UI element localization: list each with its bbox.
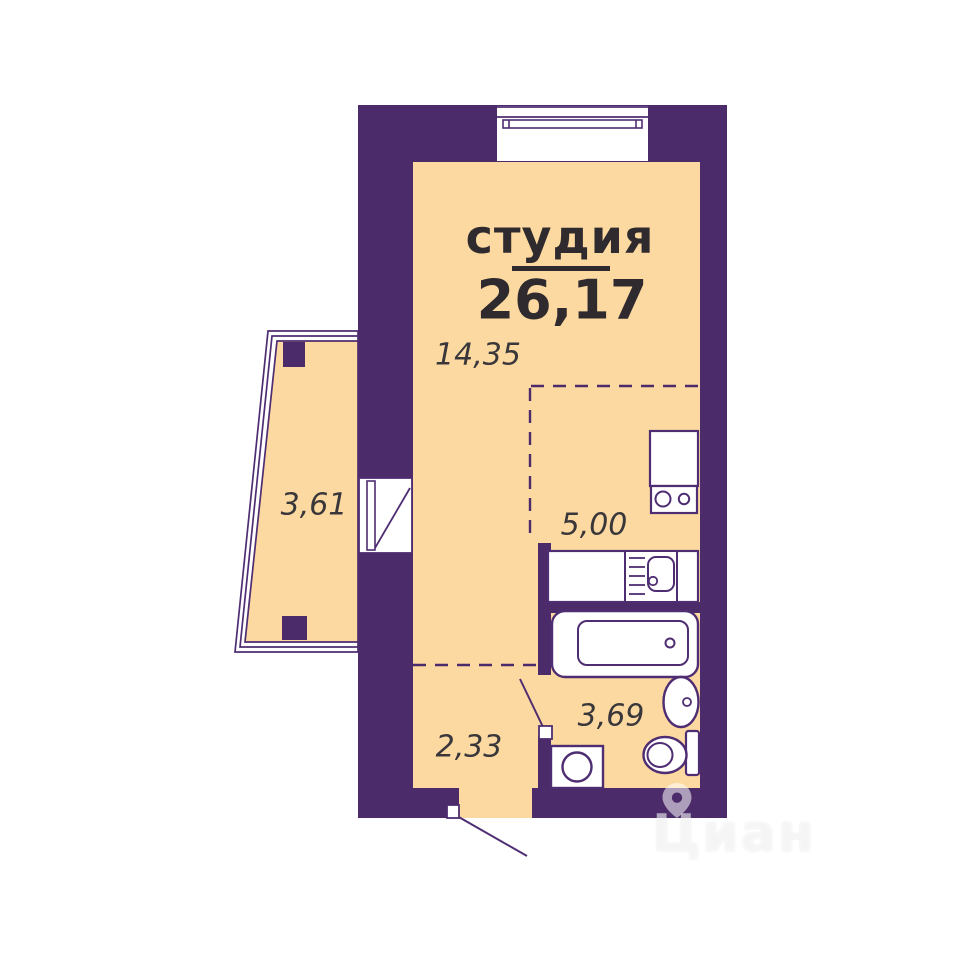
cian-watermark: Циан bbox=[652, 804, 816, 864]
area-label-studio: 14,35 bbox=[435, 338, 521, 373]
floor-plan-drawing bbox=[0, 0, 960, 960]
wall-bathroom-west-lower bbox=[538, 736, 551, 788]
wall-left bbox=[358, 105, 413, 788]
bathtub-icon bbox=[552, 611, 698, 677]
stove-icon bbox=[650, 431, 698, 513]
area-label-hallway: 2,33 bbox=[436, 730, 503, 765]
washbasin-icon bbox=[664, 677, 699, 727]
floor-plan: студия 26,17 14,35 3,61 5,00 3,69 2,33 Ц… bbox=[0, 0, 960, 960]
washing-machine-icon bbox=[551, 746, 603, 788]
area-label-bathroom: 3,69 bbox=[578, 699, 645, 734]
kitchen-counter-icon bbox=[548, 551, 698, 602]
room-type-label: студия bbox=[466, 210, 655, 264]
balcony-wall-stub-top bbox=[283, 342, 305, 367]
area-label-kitchen: 5,00 bbox=[561, 508, 628, 543]
balcony-door-icon bbox=[359, 478, 412, 553]
area-label-balcony: 3,61 bbox=[281, 488, 348, 523]
total-area-value: 26,17 bbox=[477, 269, 648, 332]
entrance-door-icon bbox=[447, 788, 532, 856]
balcony-wall-stub-bottom bbox=[282, 616, 307, 640]
wall-right bbox=[700, 105, 727, 818]
window-icon bbox=[497, 106, 648, 161]
